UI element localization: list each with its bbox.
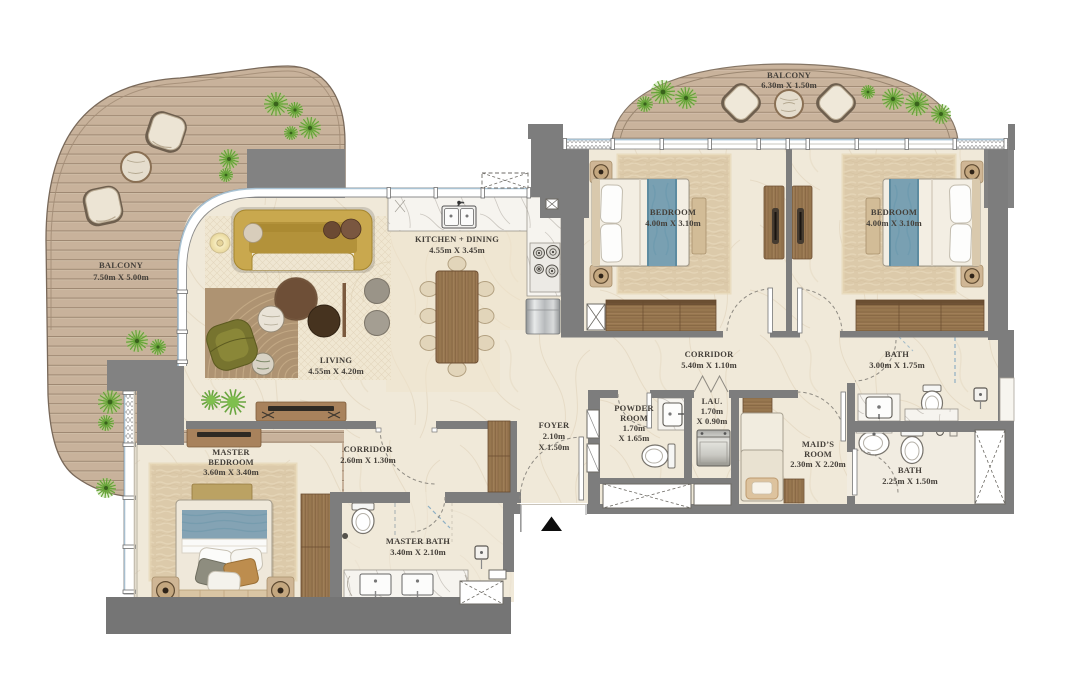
svg-text:CORRIDOR: CORRIDOR: [685, 349, 734, 359]
svg-text:X 0.90m: X 0.90m: [697, 416, 728, 426]
svg-text:2.60m X 1.30m: 2.60m X 1.30m: [340, 455, 396, 465]
svg-text:KITCHEN + DINING: KITCHEN + DINING: [415, 234, 499, 244]
svg-text:BEDROOM: BEDROOM: [208, 457, 254, 467]
svg-text:X 1.65m: X 1.65m: [619, 433, 650, 443]
svg-text:LAU.: LAU.: [702, 396, 723, 406]
svg-text:4.00m X 3.10m: 4.00m X 3.10m: [866, 218, 922, 228]
svg-text:X 1.50m: X 1.50m: [539, 442, 570, 452]
svg-text:BALCONY: BALCONY: [99, 260, 143, 270]
svg-text:BATH: BATH: [898, 465, 922, 475]
svg-text:BALCONY: BALCONY: [767, 70, 811, 80]
svg-text:BEDROOM: BEDROOM: [650, 207, 696, 217]
svg-text:POWDER: POWDER: [614, 403, 654, 413]
svg-text:1.70m: 1.70m: [623, 423, 645, 433]
svg-text:BEDROOM: BEDROOM: [871, 207, 917, 217]
svg-text:BATH: BATH: [885, 349, 909, 359]
svg-text:4.55m X 4.20m: 4.55m X 4.20m: [308, 366, 364, 376]
svg-text:3.40m X 2.10m: 3.40m X 2.10m: [390, 547, 446, 557]
svg-text:LIVING: LIVING: [320, 355, 353, 365]
svg-text:3.00m X 1.75m: 3.00m X 1.75m: [869, 360, 925, 370]
svg-text:4.00m X 3.10m: 4.00m X 3.10m: [645, 218, 701, 228]
svg-text:ROOM: ROOM: [804, 449, 832, 459]
svg-text:2.30m X 2.20m: 2.30m X 2.20m: [790, 459, 846, 469]
svg-text:MASTER BATH: MASTER BATH: [386, 536, 450, 546]
svg-text:MASTER: MASTER: [212, 447, 250, 457]
svg-text:4.55m X 3.45m: 4.55m X 3.45m: [429, 245, 485, 255]
svg-text:ROOM: ROOM: [620, 413, 648, 423]
svg-text:CORRIDOR: CORRIDOR: [344, 444, 393, 454]
svg-text:3.60m X 3.40m: 3.60m X 3.40m: [203, 467, 259, 477]
svg-text:5.40m X 1.10m: 5.40m X 1.10m: [681, 360, 737, 370]
svg-text:2.25m X 1.50m: 2.25m X 1.50m: [882, 476, 938, 486]
svg-text:FOYER: FOYER: [539, 420, 570, 430]
svg-text:1.70m: 1.70m: [701, 406, 723, 416]
svg-text:2.10m: 2.10m: [543, 431, 565, 441]
svg-text:6.30m X 1.50m: 6.30m X 1.50m: [761, 80, 817, 90]
svg-text:MAID’S: MAID’S: [802, 439, 834, 449]
svg-text:7.50m X 5.00m: 7.50m X 5.00m: [93, 272, 149, 282]
